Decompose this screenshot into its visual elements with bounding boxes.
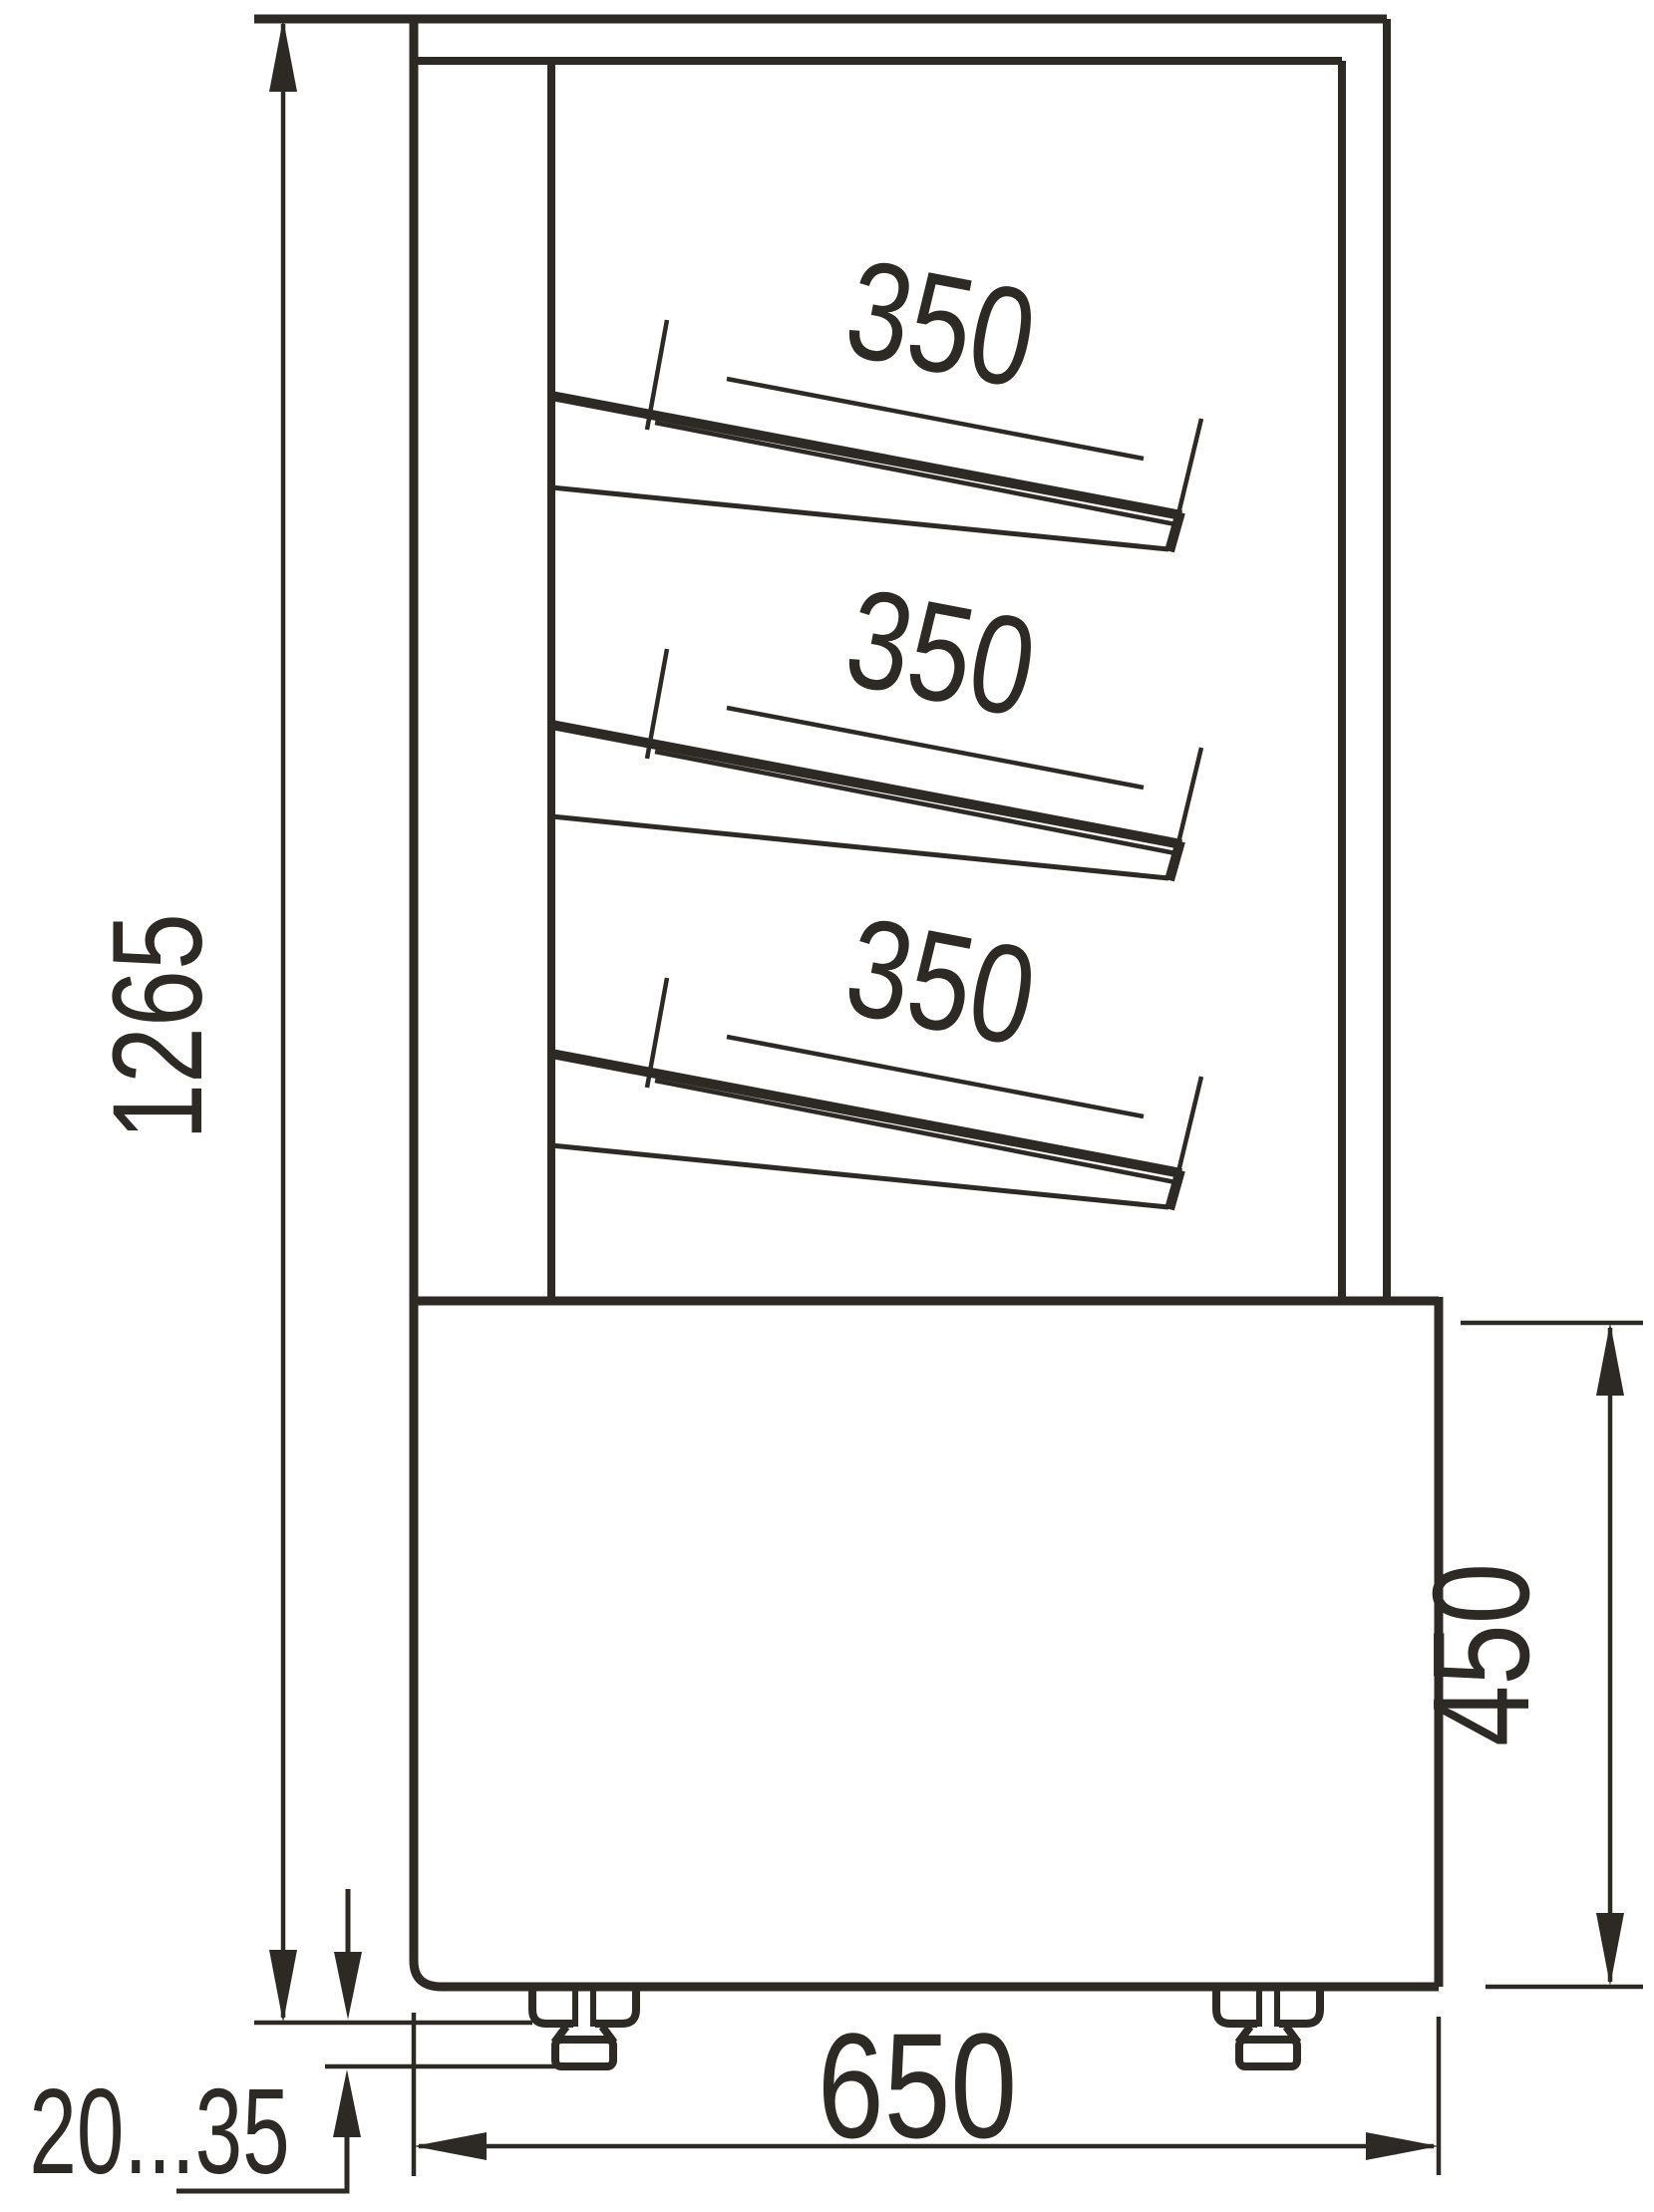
shelf-3-depth-label: 350 bbox=[835, 887, 1048, 1076]
foot-range-label: 20...35 bbox=[29, 2064, 289, 2200]
shelf-1: 350 bbox=[551, 229, 1201, 551]
shelf-3: 350 bbox=[551, 887, 1201, 1209]
technical-drawing-canvas: 350 350 350 bbox=[0, 0, 1654, 2212]
dim-depth-arrow-right bbox=[1366, 2132, 1439, 2160]
dim-height-label: 1265 bbox=[86, 913, 229, 1140]
foot-range-arrow-up bbox=[333, 2069, 361, 2137]
foot-right bbox=[1216, 1989, 1320, 2066]
dim-base-arrow-bottom bbox=[1596, 1913, 1624, 1986]
shelf-3-ext-right bbox=[1169, 1077, 1201, 1209]
dim-height-arrow-bottom bbox=[269, 1950, 297, 2023]
foot-range-arrow-down bbox=[334, 1952, 362, 2020]
shelf-1-ext-right bbox=[1169, 419, 1201, 551]
foot-left-pad bbox=[555, 2040, 613, 2066]
dim-base-arrow-top bbox=[1596, 1323, 1624, 1396]
shelf-2-ext-right bbox=[1169, 748, 1201, 880]
foot-left bbox=[532, 1989, 636, 2066]
dim-depth-arrow-left bbox=[414, 2132, 487, 2160]
dim-overall-height: 1265 bbox=[86, 19, 297, 2023]
shelf-1-depth-label: 350 bbox=[835, 229, 1048, 418]
shelf-2-underside bbox=[655, 752, 1175, 853]
shelf-2: 350 bbox=[551, 558, 1201, 880]
dim-height-arrow-top bbox=[269, 19, 297, 92]
shelf-1-underside bbox=[655, 423, 1175, 524]
foot-right-pad bbox=[1239, 2040, 1297, 2066]
foot-right-plate bbox=[1216, 1989, 1320, 2024]
dim-base-label: 450 bbox=[1405, 1563, 1557, 1746]
foot-left-plate bbox=[532, 1989, 636, 2024]
dim-depth-label: 650 bbox=[818, 2002, 1017, 2169]
shelf-3-underside bbox=[655, 1081, 1175, 1182]
shelf-2-depth-label: 350 bbox=[835, 558, 1048, 747]
drawing-sheet: 350 350 350 bbox=[0, 0, 1654, 2212]
